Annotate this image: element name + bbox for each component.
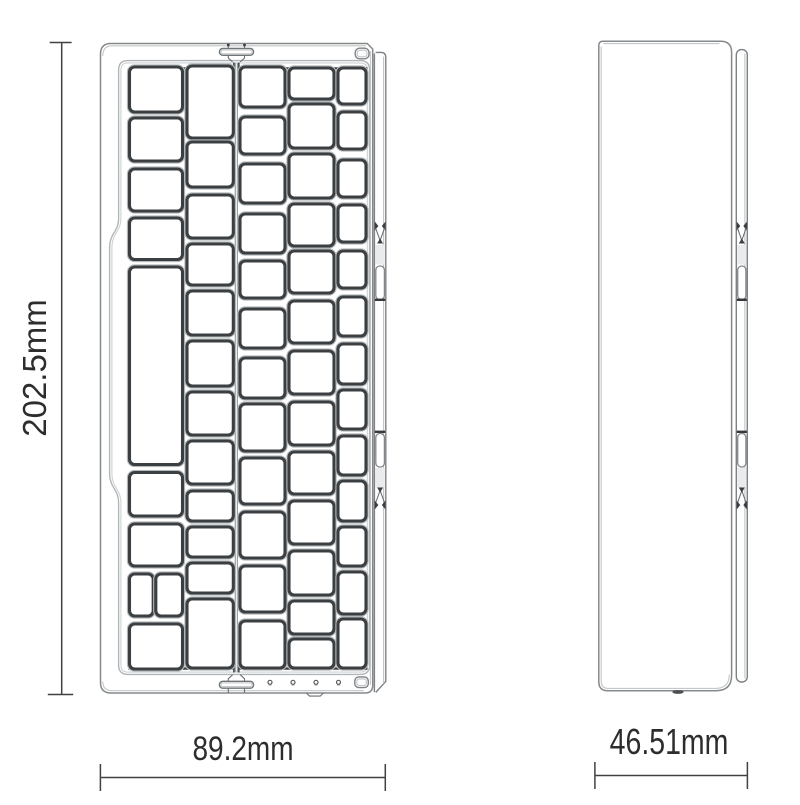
svg-text:202.5mm: 202.5mm xyxy=(16,299,53,437)
svg-text:46.51mm: 46.51mm xyxy=(610,721,729,762)
svg-text:89.2mm: 89.2mm xyxy=(192,728,293,768)
